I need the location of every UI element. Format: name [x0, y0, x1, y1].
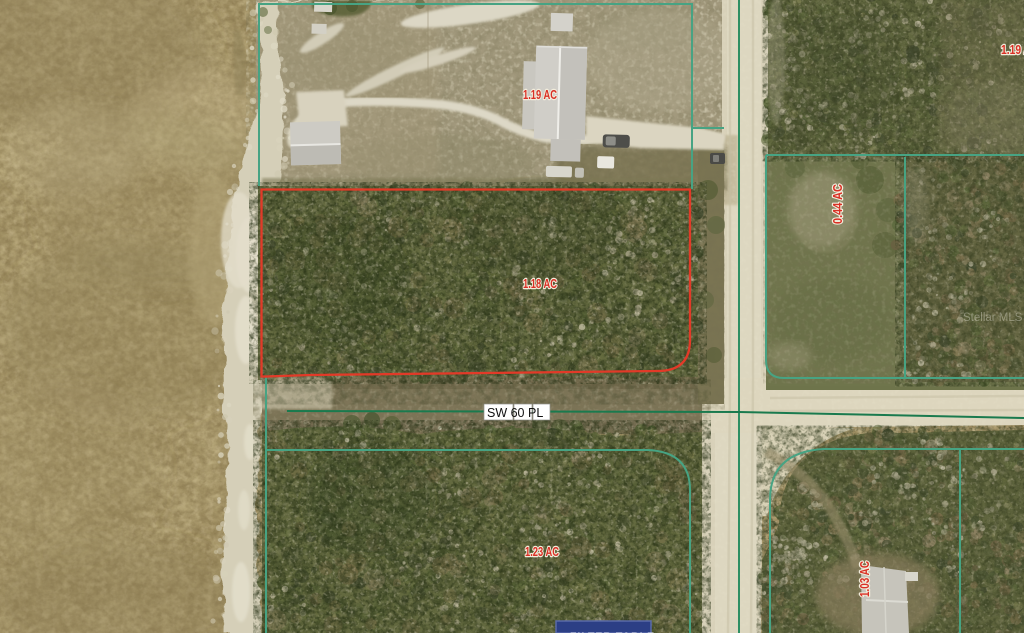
svg-text:1.18 AC: 1.18 AC	[523, 277, 557, 291]
svg-text:1.23 AC: 1.23 AC	[525, 545, 559, 559]
svg-text:SW 60 PL: SW 60 PL	[487, 406, 543, 420]
svg-text:1.19 A: 1.19 A	[1001, 43, 1024, 57]
svg-text:0.44 AC: 0.44 AC	[831, 184, 845, 224]
svg-text:1.03 AC: 1.03 AC	[858, 561, 872, 597]
svg-text:Stellar MLS: Stellar MLS	[963, 312, 1023, 324]
svg-text:1.19 AC: 1.19 AC	[523, 88, 557, 102]
